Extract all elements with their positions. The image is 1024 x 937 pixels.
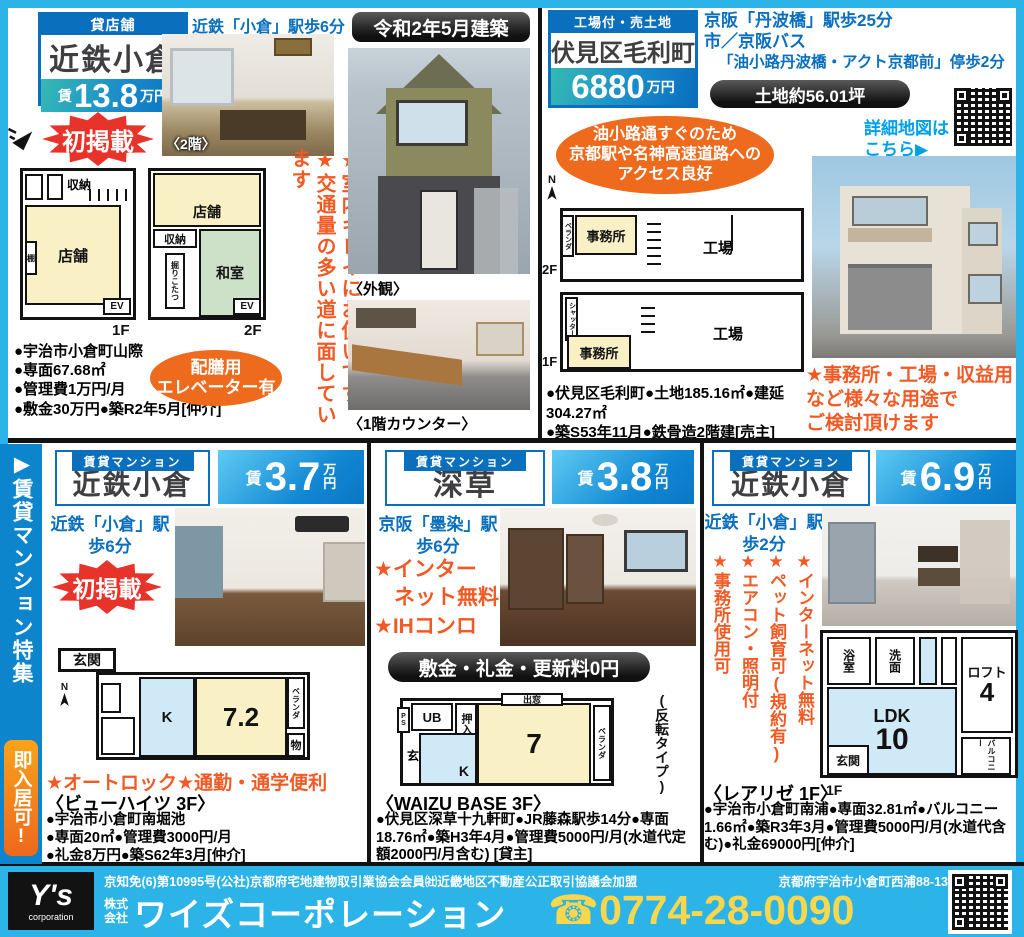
plan-stairs <box>647 221 661 265</box>
counter-caption: 〈1階カウンター〉 <box>348 413 476 434</box>
plan-bath <box>101 717 135 755</box>
photo-doorway <box>323 542 365 602</box>
qr-finder <box>952 874 967 889</box>
shop-note: ★交通量の多い道に面しています <box>286 148 336 438</box>
land-floorplan-2f: ベランダ 事務所 工場 <box>560 208 804 282</box>
shop-rent-label: 賃 <box>58 86 72 106</box>
apartment-b-price: 賃 3.8 万円 <box>552 450 694 504</box>
plan-body: PS UB 押入 玄 K 7 出窓 ベランダ <box>400 698 614 786</box>
company-logo: Y's corporation <box>8 872 94 930</box>
shop-plan1f-floor: 1F <box>112 322 130 339</box>
plan-office: 事務所 <box>567 335 631 369</box>
logo-ys: Y's <box>29 881 73 911</box>
qr-finder <box>954 88 969 103</box>
land-note-line: ★事務所・工場・収益用 <box>806 364 1013 388</box>
oval-line: エレベーター有 <box>157 378 276 398</box>
plan-label-shelf: 棚 <box>25 241 37 275</box>
apartment-c-category: 賃貸マンション <box>730 452 852 471</box>
feature-line: ★IHコンロ <box>374 613 499 641</box>
photo-door <box>566 534 604 604</box>
plan-label-storage: 収納 <box>67 176 91 193</box>
oval-line: 油小路通すぐのため <box>593 125 737 145</box>
apartment-b-name: 深草 <box>387 471 543 501</box>
photo-shutter <box>848 264 932 330</box>
land-access-line: 京阪「丹波橋」駅歩25分 <box>704 10 1018 31</box>
shop-photo-2f: 〈2階〉 <box>162 34 334 156</box>
plan-toilet <box>25 174 43 200</box>
badge-label: 即入居可! <box>12 750 31 847</box>
map-qr-code <box>950 84 1016 150</box>
plan-main-room: 7.2 <box>195 677 287 757</box>
feature-line: ★ペット飼育可(規約有) <box>762 552 790 792</box>
feature-line: ★エアコン・照明付 <box>734 552 762 792</box>
plan-loft: ロフト 4 <box>961 637 1013 733</box>
pointer-icon <box>6 124 36 154</box>
shop-category: 貸店舗 <box>41 15 185 35</box>
feature-line: ★事務所使用可 <box>706 552 734 792</box>
plan-kotatsu: 掘りこたつ <box>165 253 185 309</box>
plan-ev: EV <box>103 298 131 315</box>
land-access: 京阪「丹波橋」駅歩25分 市／京阪バス 「油小路丹波橋・アクト京都前」停歩2分 <box>704 10 1018 72</box>
move-in-now-badge: 即入居可! <box>4 740 38 856</box>
map-note: 詳細地図は こちら▶ <box>864 118 956 161</box>
apartment-c-features: ★インターネット無料 ★ペット飼育可(規約有) ★エアコン・照明付 ★事務所使用… <box>706 552 818 792</box>
photo-window <box>852 196 928 226</box>
photo-window <box>968 222 998 246</box>
photo-accent-wall <box>175 526 223 598</box>
plan-sink <box>47 174 63 200</box>
rent-label: 賃 <box>901 465 917 489</box>
apartment-a-header: 賃貸マンション 近鉄小倉 <box>55 450 210 506</box>
qr-finder <box>997 88 1012 103</box>
price-amount: 3.7 <box>265 457 321 497</box>
land-plan1f-floor: 1F <box>542 354 557 369</box>
station-line: 近鉄「小倉」駅 <box>46 514 174 536</box>
apartment-a-floorplan: 玄関 N K 7.2 ベランダ 物 <box>48 648 328 764</box>
apartment-c-floorplan: 浴室 洗面 ロフト 4 LDK 10 玄関 バルコニー <box>820 630 1018 778</box>
apartment-b-station: 京阪「墨染」駅 歩6分 <box>378 514 498 558</box>
plan-ub: UB <box>411 703 453 731</box>
plan-label-washitsu: 和室 <box>216 263 244 283</box>
land-floorplan-1f: シャッター 事務所 工場 <box>560 292 804 372</box>
apartment-c-price: 賃 6.9 万円 <box>876 450 1016 504</box>
photo-kitchen-counter <box>918 568 960 586</box>
plan-wc <box>919 637 937 685</box>
apartment-a-photo <box>175 508 365 646</box>
plan-gen: 玄 <box>407 747 419 764</box>
compass-icon: N <box>58 682 71 708</box>
plan-factory: 工場 <box>713 323 743 344</box>
company-prefix: 株式 会社 <box>104 898 128 926</box>
oval-line: 配膳用 <box>191 358 242 378</box>
plan-factory: 工場 <box>703 237 733 258</box>
compass-icon: N <box>545 174 559 202</box>
feature-line: ★インター <box>374 556 499 584</box>
apartment-b-category: 賃貸マンション <box>404 452 526 471</box>
plan-storage: 物 <box>287 733 305 757</box>
photo-hood <box>356 308 416 328</box>
photo-balcony <box>848 228 932 242</box>
photo-entrance-door <box>420 190 458 270</box>
photo-floor-pit <box>220 110 306 140</box>
land-details: ●伏見区毛利町●土地185.16㎡●建延304.27㎡ ●築S53年11月●鉄骨… <box>546 384 826 443</box>
plan-veranda: ベランダ <box>593 705 611 781</box>
unit-man: 万 <box>655 463 668 477</box>
land-usage-note: ★事務所・工場・収益用 など様々な用途で ご検討頂けます <box>806 364 1013 435</box>
apartment-c-header: 賃貸マンション 近鉄小倉 <box>712 450 870 506</box>
apartment-b-type-note: (反転タイプ) <box>652 692 672 822</box>
company-name: ワイズコーポレーション <box>134 888 506 936</box>
exterior-caption: 〈外観〉 <box>348 278 408 299</box>
plan-label-shop: 店舗 <box>58 245 88 266</box>
detail-line: ●宇治市小倉町南堀池 <box>46 811 246 829</box>
land-note-line: ご検討頂けます <box>806 412 1013 436</box>
apartment-a-price: 賃 3.7 万円 <box>218 450 364 504</box>
sidebar-title: ▶賃貸マンション特集 <box>7 452 35 685</box>
apartment-a-station: 近鉄「小倉」駅 歩6分 <box>46 514 174 558</box>
apartment-a-category: 賃貸マンション <box>71 452 193 471</box>
detail-line: ●礼金8万円●築S62年3月[仲介] <box>46 847 246 865</box>
station-line: 京阪「墨染」駅 <box>378 514 498 536</box>
unit-en: 円 <box>655 477 668 491</box>
plan-genkan: 玄関 <box>58 648 116 672</box>
photo-kitchen-hood <box>918 546 958 562</box>
plan-bath: 浴室 <box>827 637 871 685</box>
photo-window <box>968 274 1002 304</box>
built-date-pill: 令和2年5月建築 <box>352 12 530 42</box>
rent-label: 賃 <box>246 465 262 489</box>
photo-window <box>170 48 234 106</box>
land-price: 6880 <box>571 70 644 103</box>
apartment-a-details: ●宇治市小倉町南堀池 ●専面20㎡●管理費3000円/月 ●礼金8万円●築S62… <box>46 811 246 865</box>
oval-line: 京都駅や名神高速道路への <box>569 145 761 165</box>
land-building-photo <box>812 156 1016 358</box>
apartment-b-features: ★インター ネット無料 ★IHコンロ <box>374 556 499 641</box>
station-line: 近鉄「小倉」駅 <box>704 512 824 534</box>
apartment-c-name: 近鉄小倉 <box>714 471 868 499</box>
apartment-b-floorplan: PS UB 押入 玄 K 7 出窓 ベランダ <box>392 692 642 788</box>
detail-line: ●専面20㎡●管理費3000円/月 <box>46 829 246 847</box>
plan-office: 事務所 <box>575 215 637 255</box>
shop-price: 13.8 <box>74 79 138 112</box>
photo-side-structure <box>474 188 518 274</box>
land-access-line: 「油小路丹波橋・アクト京都前」停歩2分 <box>704 53 1018 72</box>
company-name-row: 株式 会社 ワイズコーポレーション <box>104 888 506 936</box>
apartment-b-details: ●伏見区深草十九軒町●JR藤森駅歩14分●専面18.76㎡●築H3年4月●管理費… <box>376 812 694 865</box>
rental-feature-sidebar: ▶賃貸マンション特集 即入居可! <box>0 444 42 864</box>
station-line: 歩6分 <box>378 536 498 558</box>
photo-window <box>624 530 688 572</box>
unit-en: 円 <box>323 477 336 491</box>
prefix-kaisha: 会社 <box>104 912 128 926</box>
counter-photo <box>348 300 530 410</box>
plan-storage2: 収納 <box>153 229 197 248</box>
apartment-b-header: 賃貸マンション 深草 <box>385 450 545 506</box>
photo-accent-wall <box>960 520 1010 604</box>
plan-demado: 出窓 <box>501 693 563 706</box>
land-category: 工場付・売土地 <box>551 13 695 33</box>
plan-kitchen: K <box>419 733 477 785</box>
photo-closet-doors <box>828 522 876 604</box>
plan-ps: PS <box>397 707 410 733</box>
shop-plan2f-floor: 2F <box>244 322 262 339</box>
plan-main-room: 7 <box>477 703 591 785</box>
unit-man: 万 <box>323 463 336 477</box>
feature-line: ★インターネット無料 <box>790 552 818 792</box>
photo-inner-window <box>476 322 524 356</box>
exterior-photo <box>348 48 530 274</box>
plan-body: K 7.2 ベランダ 物 <box>96 672 310 760</box>
apartment-a-name: 近鉄小倉 <box>57 471 208 499</box>
shop-elevator-note: 配膳用 エレベーター有 <box>150 350 282 406</box>
land-price-box: 工場付・売土地 伏見区毛利町 6880 万円 <box>548 10 698 108</box>
photo-ceiling-light <box>295 516 349 532</box>
plan-room-shop: 店舗 <box>25 205 121 305</box>
flyer-page: 貸店舗 近鉄小倉 賃 13.8 万円 近鉄「小倉」駅歩6分 〈2階〉 初掲載 収… <box>0 0 1024 937</box>
prefix-kabushiki: 株式 <box>104 898 128 912</box>
horizontal-divider <box>8 438 1016 443</box>
shop-photo-caption: 〈2階〉 <box>166 134 216 154</box>
plan-stairs <box>641 303 655 333</box>
photo-counter <box>352 344 462 385</box>
plan-toilet <box>101 683 121 713</box>
shop-floorplan-2f: 店舗 収納 和室 掘りこたつ EV <box>148 168 266 320</box>
footer-qr-code <box>948 870 1012 934</box>
unit-man: 万 <box>978 463 991 477</box>
land-area-pill: 土地約56.01坪 <box>710 80 910 108</box>
plan-k-label: K <box>459 763 469 779</box>
plan-wall <box>731 215 733 251</box>
plan-label-shop: 店舗 <box>193 202 221 222</box>
photo-upper-window <box>396 100 468 146</box>
plan-room-shop2: 店舗 <box>153 173 261 227</box>
price-amount: 3.8 <box>597 457 653 497</box>
compass-n: N <box>61 682 68 693</box>
station-line: 歩6分 <box>46 536 174 558</box>
photo-closet-doors <box>508 528 564 610</box>
qr-finder <box>993 874 1008 889</box>
land-name: 伏見区毛利町 <box>551 33 695 68</box>
plan-balcony: バルコニー <box>961 737 1011 775</box>
land-price-unit: 万円 <box>647 77 675 97</box>
plan-loft-size: 4 <box>980 679 994 705</box>
plan-veranda: ベランダ <box>561 215 574 257</box>
apartment-b-photo <box>500 508 696 646</box>
photo-ceiling-light <box>274 38 312 56</box>
oval-line: アクセス良好 <box>617 165 712 185</box>
feature-line: ネット無料 <box>374 584 499 612</box>
compass-n: N <box>548 174 556 186</box>
phone-number: ☎0774-28-0090 <box>548 886 854 934</box>
plan-ev: EV <box>233 298 261 315</box>
plan-washstand: 洗面 <box>875 637 915 685</box>
map-note-line: 詳細地図は <box>864 118 956 139</box>
land-plan2f-floor: 2F <box>542 262 557 277</box>
logo-corporation: corporation <box>28 913 73 922</box>
photo-ceiling-light <box>592 514 618 526</box>
apartment-c-photo <box>822 506 1016 626</box>
shop-floorplan-1f: 収納 店舗 棚 EV <box>20 168 136 320</box>
plan-stairs <box>89 189 129 201</box>
vertical-divider-top <box>538 8 542 442</box>
plan-wc2 <box>941 637 957 685</box>
land-access-line: 市／京阪バス <box>704 31 1018 52</box>
apartment-b-zero-pill: 敷金・礼金・更新料0円 <box>388 652 650 682</box>
unit-en: 円 <box>978 477 991 491</box>
apartment-c-details: ●宇治市小倉町南浦●専面32.81㎡●バルコニー1.66㎡●築R3年3月●管理費… <box>704 802 1016 855</box>
qr-finder <box>952 915 967 930</box>
land-detail-line: ●伏見区毛利町●土地185.16㎡●建延304.27㎡ <box>546 384 826 423</box>
plan-kitchen: K <box>139 677 195 757</box>
plan-veranda: ベランダ <box>287 677 305 729</box>
plan-genkan: 玄関 <box>827 745 869 775</box>
vertical-divider-bottom-1 <box>367 443 371 864</box>
apartment-c-station: 近鉄「小倉」駅 歩2分 <box>704 512 824 556</box>
qr-finder <box>954 131 969 146</box>
land-note-line: など様々な用途で <box>806 388 1013 412</box>
land-access-note: 油小路通すぐのため 京都駅や名神高速道路への アクセス良好 <box>556 116 774 194</box>
rent-label: 賃 <box>578 465 594 489</box>
plan-ldk-size: 10 <box>875 725 908 755</box>
price-amount: 6.9 <box>920 457 976 497</box>
